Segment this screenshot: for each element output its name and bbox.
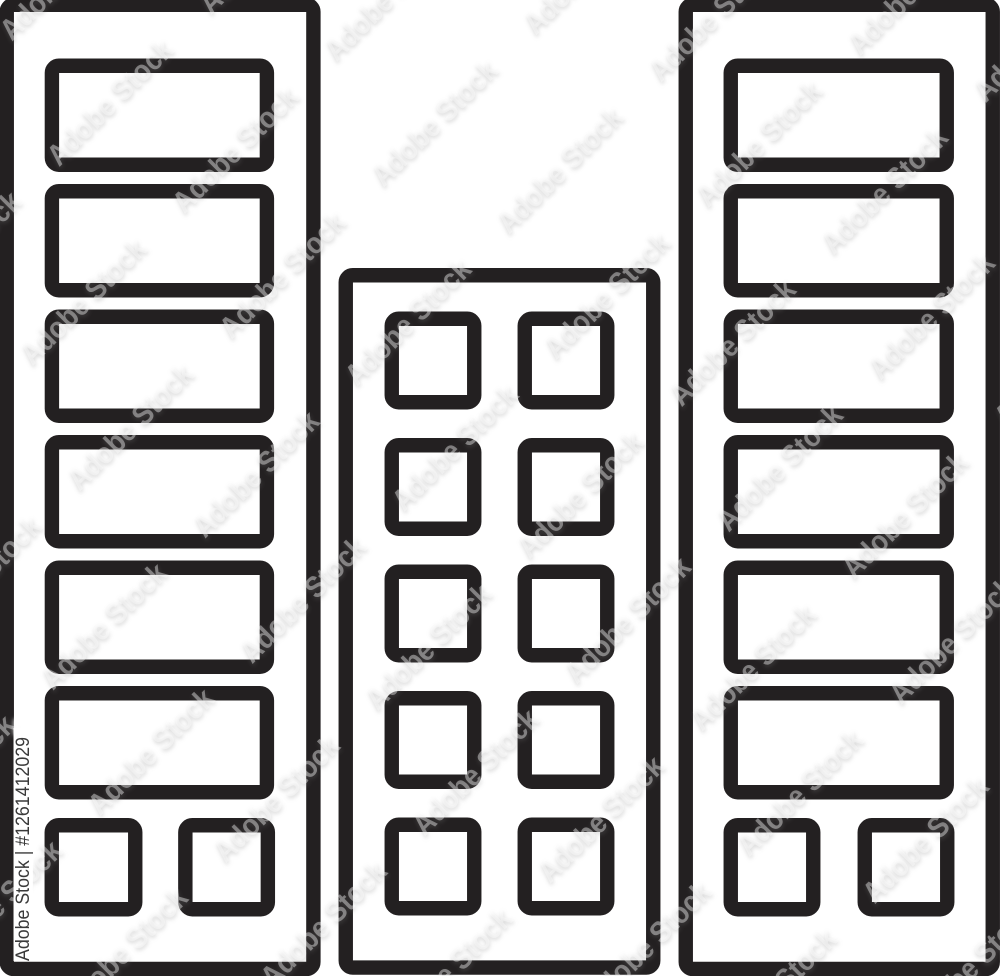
svg-text:Adobe Stock | #1261412029: Adobe Stock | #1261412029 xyxy=(13,737,34,961)
